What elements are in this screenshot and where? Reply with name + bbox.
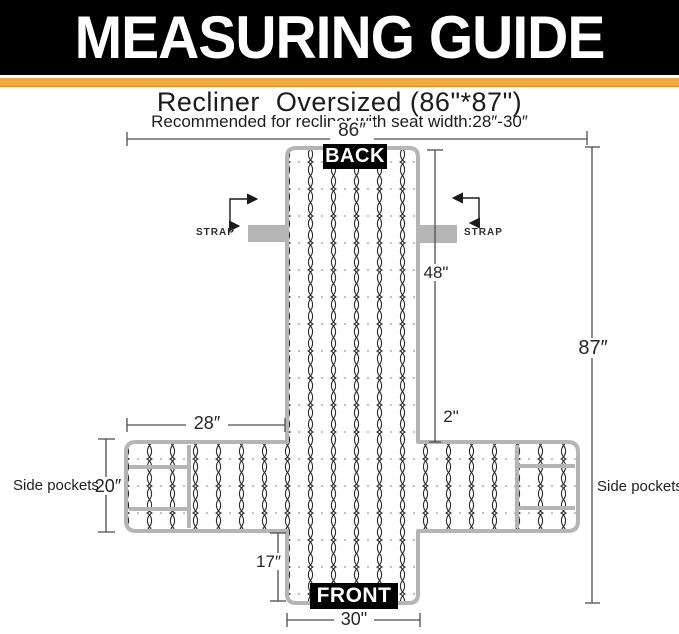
dim-front-width: 30" — [334, 610, 374, 628]
left-side-pockets-label: Side pockets — [13, 477, 99, 494]
back-tag: BACK — [323, 144, 387, 169]
recliner-cover-diagram — [0, 0, 679, 634]
right-side-pockets-label: Side pockets — [597, 478, 679, 495]
cover-outline — [126, 148, 578, 603]
dim-total-height: 87″ — [572, 338, 614, 358]
dim-seat-gap: 2" — [438, 408, 464, 425]
dim-arm-span: 28″ — [186, 414, 228, 432]
front-tag: FRONT — [310, 583, 398, 609]
dim-back-height: 48" — [420, 264, 452, 281]
left-strap-label: STRAP — [196, 227, 235, 238]
right-strap — [416, 225, 457, 243]
dim-total-width: 86″ — [330, 121, 374, 140]
left-strap — [248, 225, 289, 242]
measuring-guide-page: MEASURING GUIDE Recliner Oversized (86"*… — [0, 0, 679, 634]
right-strap-label: STRAP — [464, 227, 503, 238]
right-strap-arrow — [454, 198, 479, 223]
left-strap-arrow — [230, 199, 256, 226]
dim-front-drop: 17″ — [252, 553, 285, 570]
